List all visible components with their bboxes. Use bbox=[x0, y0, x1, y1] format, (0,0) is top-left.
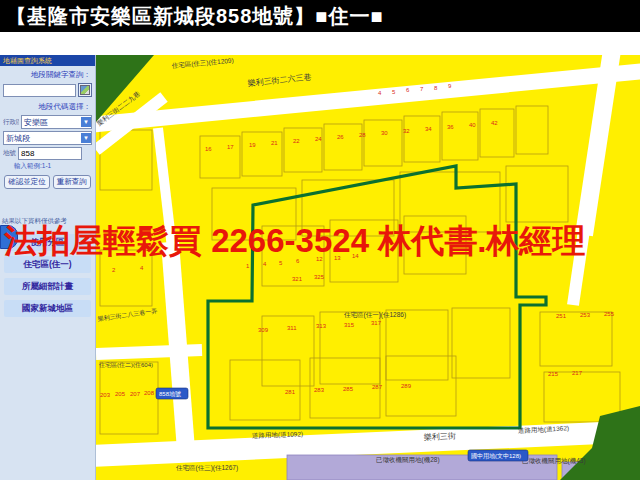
locate-button[interactable]: 確認並定位 bbox=[4, 175, 50, 189]
parcel-number: 309 bbox=[258, 327, 269, 333]
map-label: 住宅區(住二)(住604) bbox=[99, 361, 153, 368]
parcel-number: 289 bbox=[401, 383, 412, 389]
parcel-number: 203 bbox=[100, 392, 111, 398]
map-label: 住宅區(住一)(住1286) bbox=[344, 311, 406, 319]
map-badge-label: 858地號 bbox=[159, 390, 181, 398]
parcel-number: 283 bbox=[314, 387, 325, 393]
search-icon bbox=[80, 85, 90, 95]
panel-title: 地籍圖查詢系統 bbox=[0, 55, 95, 66]
ad-banner: 法拍屋輕鬆買 2266-3524 林代書.林經理 bbox=[4, 219, 640, 264]
cadastral-map[interactable]: 住宅區(住三)(住1209)樂利三街二六三巷樂利三街二二九巷樂利三街二八三巷一弄… bbox=[96, 55, 640, 480]
title-bar: 【基隆市安樂區新城段858地號】■住一■ bbox=[0, 0, 640, 32]
parcel-number: 40 bbox=[469, 122, 476, 128]
parcel-number: 317 bbox=[371, 320, 382, 326]
map-label: 住宅區(住三)(住1267) bbox=[176, 464, 238, 472]
keyword-label: 地段關鍵字查詢： bbox=[0, 66, 95, 82]
section-select[interactable]: 新城段 ▼ bbox=[3, 131, 92, 145]
keyword-input[interactable] bbox=[3, 84, 76, 97]
chevron-down-icon[interactable]: ▼ bbox=[81, 133, 91, 143]
parcel-number: 26 bbox=[337, 134, 344, 140]
section-value: 新城段 bbox=[6, 133, 30, 144]
parcel-number: 325 bbox=[314, 274, 325, 280]
query-panel: 地籍圖查詢系統 地段關鍵字查詢： 地段代碼選擇： 行政區 安樂區 ▼ 新城段 ▼… bbox=[0, 55, 96, 480]
parcel-number: 255 bbox=[604, 311, 615, 317]
map-label: 已徵收機關用地(機28) bbox=[376, 456, 440, 464]
parcel-number: 17 bbox=[227, 144, 234, 150]
app-window: 【基隆市安樂區新城段858地號】■住一■ 地籍圖查詢系統 地段關鍵字查詢： 地段… bbox=[0, 0, 640, 480]
map-badge-label: 國中用地(文中128) bbox=[471, 452, 521, 460]
parcel-number: 251 bbox=[556, 313, 567, 319]
parcel-number: 253 bbox=[580, 312, 591, 318]
parcel-number: 215 bbox=[548, 371, 559, 377]
search-button[interactable] bbox=[78, 83, 92, 97]
parcel-number: 321 bbox=[292, 276, 303, 282]
map-canvas[interactable]: 住宅區(住三)(住1209)樂利三街二六三巷樂利三街二二九巷樂利三街二八三巷一弄… bbox=[96, 55, 640, 480]
parcel-number: 24 bbox=[315, 136, 322, 142]
parcel-number: 285 bbox=[343, 386, 354, 392]
parcel-number: 315 bbox=[344, 322, 355, 328]
parcel-number: 28 bbox=[359, 132, 366, 138]
parcel-number: 30 bbox=[381, 130, 388, 136]
parcel-number: 32 bbox=[403, 128, 410, 134]
parcel-number: 281 bbox=[285, 389, 296, 395]
district-label: 行政區 bbox=[3, 118, 19, 127]
parcel-number: 21 bbox=[271, 140, 278, 146]
parcel-number: 208 bbox=[144, 390, 155, 396]
parcel-number: 16 bbox=[205, 146, 212, 152]
input-hint: 輸入範例:1-1 bbox=[0, 161, 95, 173]
result-item[interactable]: 國家新城地區 bbox=[4, 300, 91, 317]
map-label: 已徵收機關用地(機43) bbox=[522, 457, 586, 465]
parcel-number: 287 bbox=[372, 384, 383, 390]
map-label: 樂利三街 bbox=[424, 431, 456, 442]
lot-label: 地號 bbox=[3, 149, 16, 158]
parcel-number: 22 bbox=[293, 138, 300, 144]
lot-input[interactable] bbox=[18, 147, 82, 160]
chevron-down-icon[interactable]: ▼ bbox=[81, 117, 91, 127]
requery-button[interactable]: 重新查詢 bbox=[53, 175, 91, 189]
parcel-number: 217 bbox=[572, 370, 583, 376]
parcel-number: 207 bbox=[130, 391, 141, 397]
district-select[interactable]: 安樂區 ▼ bbox=[21, 115, 92, 129]
result-item[interactable]: 所屬細部計畫 bbox=[4, 278, 91, 295]
code-select-label: 地段代碼選擇： bbox=[0, 98, 95, 114]
parcel-number: 313 bbox=[316, 323, 327, 329]
parcel-number: 205 bbox=[115, 391, 126, 397]
parcel-number: 36 bbox=[447, 124, 454, 130]
parcel-number: 311 bbox=[287, 325, 297, 331]
page-title: 【基隆市安樂區新城段858地號】■住一■ bbox=[6, 3, 384, 30]
parcel-number: 19 bbox=[249, 142, 256, 148]
parcel-number: 42 bbox=[491, 120, 498, 126]
road bbox=[96, 350, 202, 354]
parcel-number: 34 bbox=[425, 126, 432, 132]
district-value: 安樂區 bbox=[24, 117, 48, 128]
